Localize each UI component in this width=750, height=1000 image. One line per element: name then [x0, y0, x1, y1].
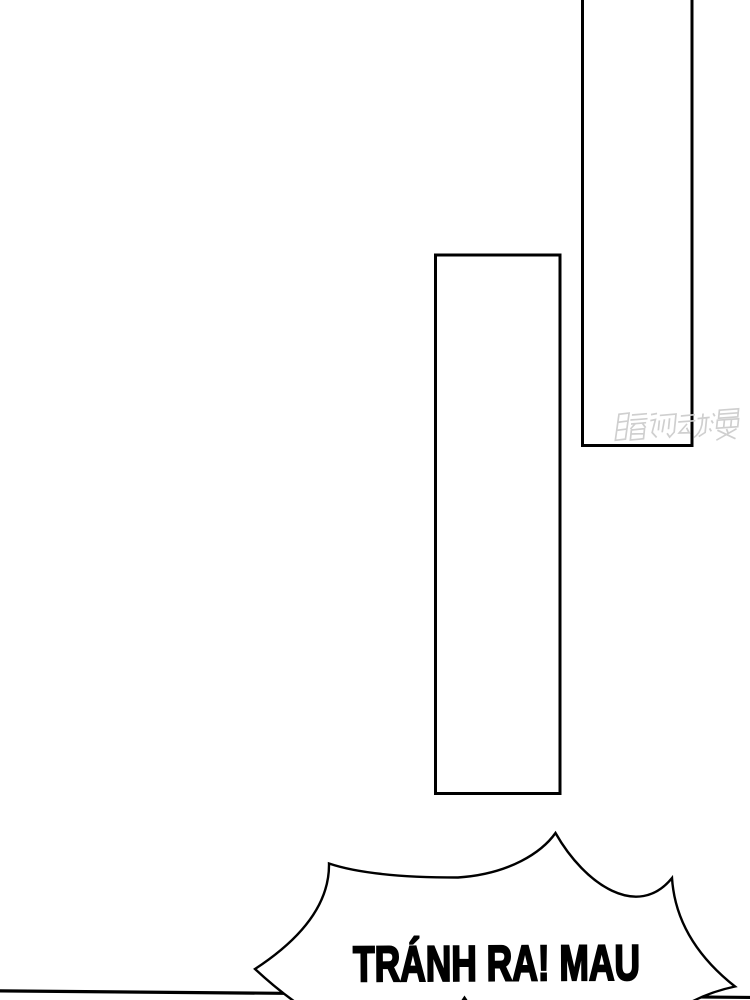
svg-text:TRÁNH RA! MAU: TRÁNH RA! MAU [353, 935, 640, 993]
